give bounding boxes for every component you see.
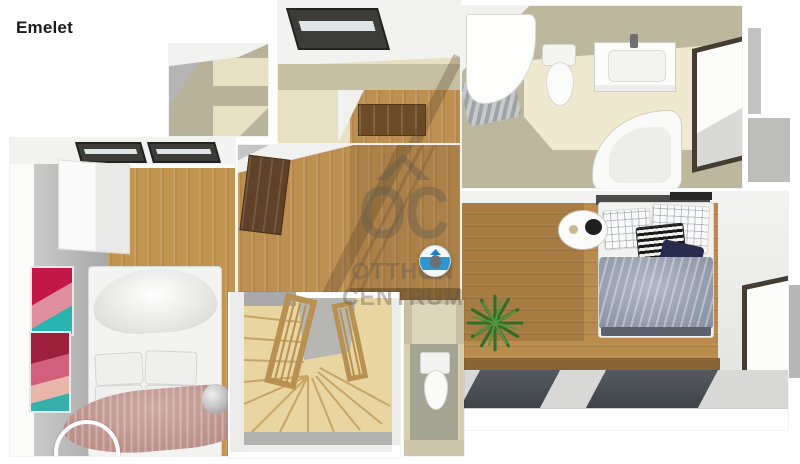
side-table-deco bbox=[569, 225, 578, 234]
skylight-glass bbox=[299, 21, 376, 31]
wall-shelf-black bbox=[670, 192, 712, 200]
room-wc bbox=[404, 300, 464, 456]
roof-window-panel-b bbox=[586, 370, 718, 408]
wc-front-wall bbox=[404, 440, 464, 456]
silver-pouf bbox=[202, 384, 230, 414]
exterior-wall-gray-b bbox=[748, 118, 790, 182]
eave-white-band bbox=[462, 408, 788, 430]
camera-sphere-marker bbox=[419, 245, 451, 277]
skylight-window bbox=[286, 8, 390, 50]
wall-art-frame-b bbox=[29, 331, 71, 413]
vanity-basin bbox=[608, 50, 666, 82]
vanity-faucet bbox=[630, 34, 638, 48]
stair-wall-right bbox=[392, 298, 400, 445]
room-hallway-top bbox=[278, 0, 460, 143]
bedroom-left-skylight-a bbox=[75, 142, 147, 163]
roof-slope-band bbox=[462, 370, 788, 408]
bed-foot-band bbox=[601, 327, 711, 336]
page-title: Emelet bbox=[16, 18, 73, 38]
skylight-a-glass bbox=[84, 149, 137, 153]
room-staircase bbox=[228, 292, 400, 458]
duvet-roll-white bbox=[91, 265, 219, 337]
room-bathroom bbox=[462, 6, 742, 188]
wall-art-frame-a bbox=[30, 266, 74, 336]
bathroom-window bbox=[692, 35, 742, 173]
potted-palm bbox=[464, 292, 526, 354]
duvet-gray bbox=[599, 257, 713, 329]
stair-bottom-wall-white bbox=[244, 445, 392, 452]
room-landing-hall bbox=[238, 145, 460, 300]
room-closet-top bbox=[169, 44, 268, 136]
side-table-tray bbox=[585, 219, 602, 235]
pillow-left-3 bbox=[144, 350, 197, 386]
wc-back-wall-light bbox=[412, 304, 456, 344]
bedroom-left-skylight-b bbox=[147, 142, 221, 163]
open-door-leaf bbox=[240, 155, 291, 236]
closet-shelf-band bbox=[213, 86, 268, 106]
exterior-wall-gray-a bbox=[748, 28, 761, 114]
skylight-b-glass bbox=[156, 149, 211, 153]
bathtub-basin bbox=[609, 127, 671, 183]
marker-figure bbox=[430, 255, 441, 268]
stair-bottom-landing-gray bbox=[244, 432, 392, 445]
side-table bbox=[558, 210, 608, 250]
room-bedroom-right bbox=[462, 192, 788, 430]
floorplan-render: Emelet bbox=[0, 0, 800, 464]
floor-edge-dark-wood bbox=[462, 358, 720, 370]
exterior-wall-gray-right bbox=[789, 285, 800, 378]
hallway-wall-band bbox=[278, 64, 460, 90]
double-bed-right bbox=[598, 202, 714, 338]
room-bedroom-left bbox=[10, 138, 235, 456]
roof-window-panel-a bbox=[462, 370, 560, 408]
pillow-left-1 bbox=[94, 352, 144, 386]
stair-wall-left bbox=[230, 292, 244, 452]
white-wardrobe bbox=[58, 159, 130, 254]
bathroom-window-sill-shade bbox=[697, 107, 742, 166]
marker-roof-icon bbox=[430, 249, 441, 255]
winder-stairs-drawing bbox=[228, 292, 400, 458]
